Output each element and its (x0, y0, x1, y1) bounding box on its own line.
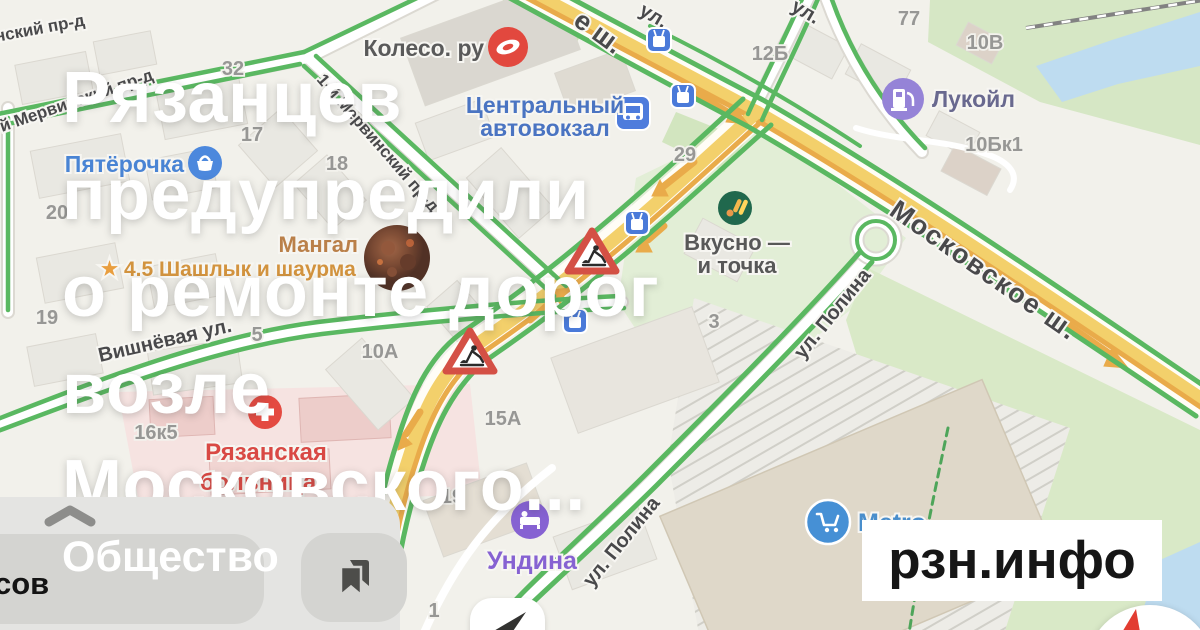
headline-line: о ремонте дорог (62, 244, 659, 341)
headline-line: предупредили (62, 147, 659, 244)
location-arrow-icon (484, 598, 532, 630)
compass-needle-icon (1086, 605, 1200, 630)
bookmark-button[interactable] (301, 533, 407, 622)
compass-button[interactable] (1086, 605, 1200, 630)
bookmark-icon (330, 554, 378, 602)
headline-line: Рязанцев (62, 50, 659, 147)
chevron-up-icon[interactable] (44, 504, 96, 528)
headline: Рязанцев предупредили о ремонте дорог во… (62, 50, 659, 535)
category-label: Общество (62, 533, 279, 582)
location-button[interactable] (470, 598, 545, 630)
headline-line: возле (62, 341, 659, 438)
og-image: Мервинский пр-д й Мервинский пр-д 1-й Ме… (0, 0, 1200, 630)
truncated-text: сов (0, 566, 49, 602)
brand-logo-text: рзн.инфо (888, 530, 1135, 591)
brand-logo: рзн.инфо (862, 520, 1162, 601)
